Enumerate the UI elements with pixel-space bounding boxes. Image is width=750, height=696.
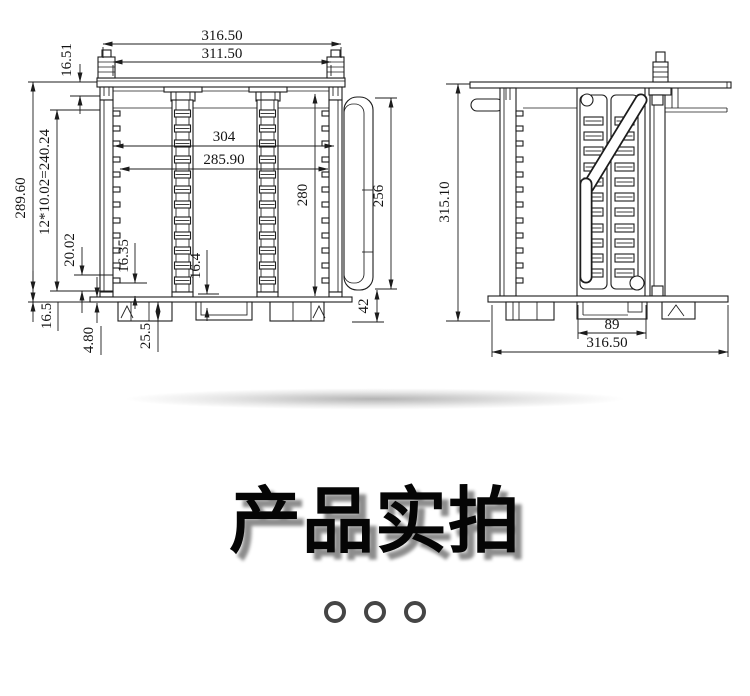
dim-20-02: 20.02 bbox=[62, 233, 78, 267]
dim-16-4: 16.4 bbox=[188, 252, 204, 279]
carousel-dot-2[interactable] bbox=[364, 601, 386, 623]
dim-16-5: 16.5 bbox=[39, 303, 55, 329]
dim-handle-height: 256 bbox=[371, 184, 387, 207]
front-view bbox=[90, 50, 373, 321]
dim-knob-height: 16.51 bbox=[59, 43, 75, 77]
dim-tray-width: 89 bbox=[605, 317, 620, 333]
section-divider-shadow bbox=[55, 386, 695, 420]
side-view bbox=[470, 52, 731, 320]
dim-inner-height: 280 bbox=[295, 184, 311, 207]
dim-slot-pitch: 12*10.02=240.24 bbox=[37, 129, 53, 235]
carousel-dots bbox=[0, 601, 750, 623]
carousel-dot-3[interactable] bbox=[404, 601, 426, 623]
handle bbox=[344, 97, 373, 290]
dim-overall-height: 289.60 bbox=[13, 177, 29, 218]
dim-inner-width: 311.50 bbox=[202, 46, 243, 62]
technical-drawing: 316.50 311.50 16.51 289.60 12*10.02=240.… bbox=[0, 0, 750, 378]
dim-overall-width: 316.50 bbox=[201, 28, 242, 44]
dim-4-80: 4.80 bbox=[81, 327, 97, 353]
product-page-section: 316.50 311.50 16.51 289.60 12*10.02=240.… bbox=[0, 0, 750, 696]
carousel-dot-1[interactable] bbox=[324, 601, 346, 623]
dim-card-span: 285.90 bbox=[203, 152, 244, 168]
dim-guide-span: 304 bbox=[213, 129, 236, 145]
section-title: 产品实拍 bbox=[0, 462, 750, 567]
dim-42: 42 bbox=[356, 299, 372, 314]
dim-25-5: 25.5 bbox=[138, 323, 154, 349]
dim-side-overall-width: 316.50 bbox=[586, 335, 627, 351]
dim-16-35: 16.35 bbox=[116, 239, 132, 273]
dim-side-overall-height: 315.10 bbox=[437, 181, 453, 222]
